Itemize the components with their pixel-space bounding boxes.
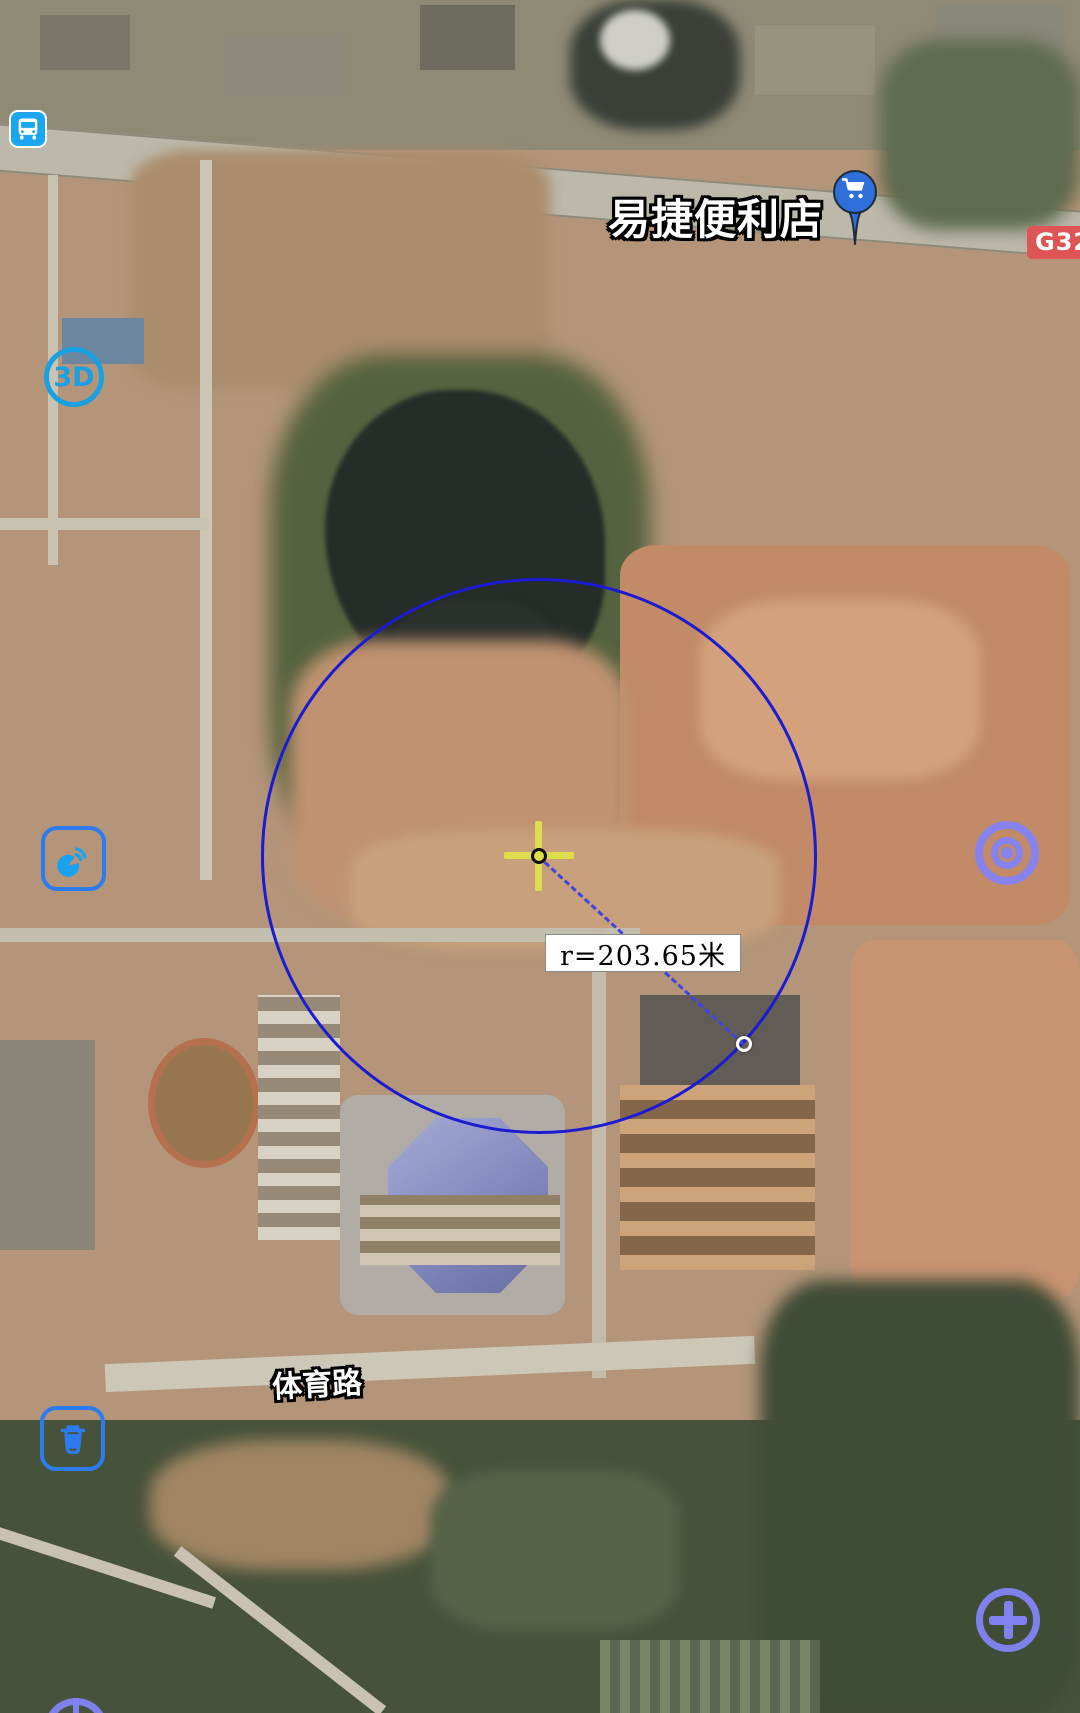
- terrain-sport-road: [105, 1336, 756, 1392]
- terrain-track-field: [148, 1038, 260, 1168]
- target-inner-ring: [991, 837, 1023, 869]
- poi-pin[interactable]: [831, 168, 879, 250]
- bus-icon: [14, 115, 42, 143]
- trash-button[interactable]: [40, 1406, 105, 1471]
- satellite-signal-button[interactable]: [41, 826, 106, 891]
- map-canvas[interactable]: r=203.65米 易捷便利店 G32 体育路 3D: [0, 0, 1080, 1713]
- partial-bottom-button-tick: [73, 1698, 79, 1713]
- trash-icon: [50, 1416, 96, 1462]
- target-center-dot: [1001, 847, 1013, 859]
- radius-label: r=203.65米: [545, 934, 741, 972]
- zoom-in-button[interactable]: [976, 1588, 1040, 1652]
- road-name-label: 体育路: [271, 1358, 363, 1407]
- satellite-dish-icon: [51, 836, 97, 882]
- 3d-view-button[interactable]: 3D: [44, 347, 104, 407]
- bus-station-marker[interactable]: [9, 110, 47, 148]
- locate-target-button[interactable]: [975, 821, 1039, 885]
- poi-label[interactable]: 易捷便利店: [608, 186, 823, 247]
- radius-endpoint-handle[interactable]: [736, 1036, 752, 1052]
- highway-badge: G32: [1027, 226, 1080, 259]
- 3d-button-label: 3D: [53, 362, 94, 393]
- crosshair-center-ring: [531, 848, 547, 864]
